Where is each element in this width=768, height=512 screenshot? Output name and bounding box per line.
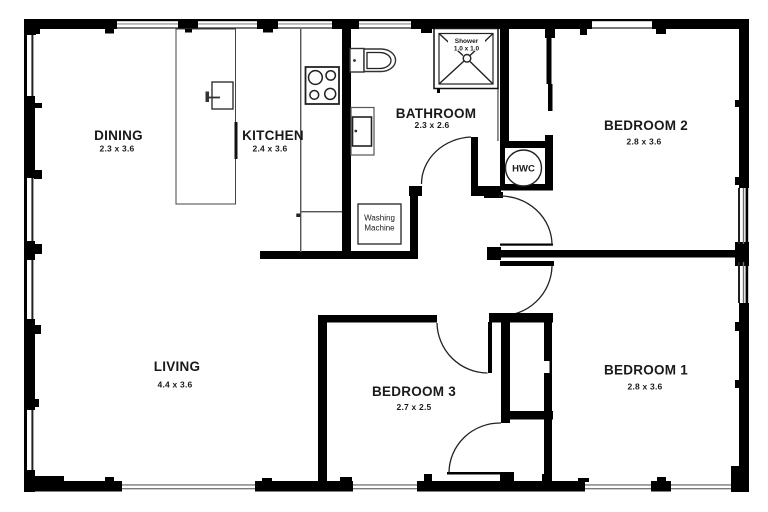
- svg-text:2.3 x 2.6: 2.3 x 2.6: [415, 120, 450, 130]
- svg-text:BATHROOM: BATHROOM: [396, 106, 477, 121]
- svg-text:KITCHEN: KITCHEN: [242, 128, 304, 143]
- svg-text:BEDROOM 1: BEDROOM 1: [604, 363, 688, 378]
- svg-text:2.7 x 2.5: 2.7 x 2.5: [397, 402, 432, 412]
- svg-text:Washing: Washing: [364, 214, 395, 223]
- svg-text:DINING: DINING: [94, 128, 143, 143]
- svg-text:LIVING: LIVING: [154, 359, 201, 374]
- svg-text:2.3 x 3.6: 2.3 x 3.6: [100, 144, 135, 154]
- svg-text:2.4 x 3.6: 2.4 x 3.6: [253, 144, 288, 154]
- svg-text:2.8 x 3.6: 2.8 x 3.6: [627, 137, 662, 147]
- svg-text:HWC: HWC: [512, 164, 535, 175]
- svg-text:BEDROOM 3: BEDROOM 3: [372, 384, 456, 399]
- svg-text:BEDROOM 2: BEDROOM 2: [604, 118, 688, 133]
- svg-text:Machine: Machine: [364, 224, 395, 233]
- svg-text:1.0 x 1.0: 1.0 x 1.0: [454, 46, 480, 53]
- svg-text:Shower: Shower: [455, 38, 479, 45]
- svg-text:4.4 x 3.6: 4.4 x 3.6: [158, 380, 193, 390]
- svg-text:2.8 x 3.6: 2.8 x 3.6: [628, 382, 663, 392]
